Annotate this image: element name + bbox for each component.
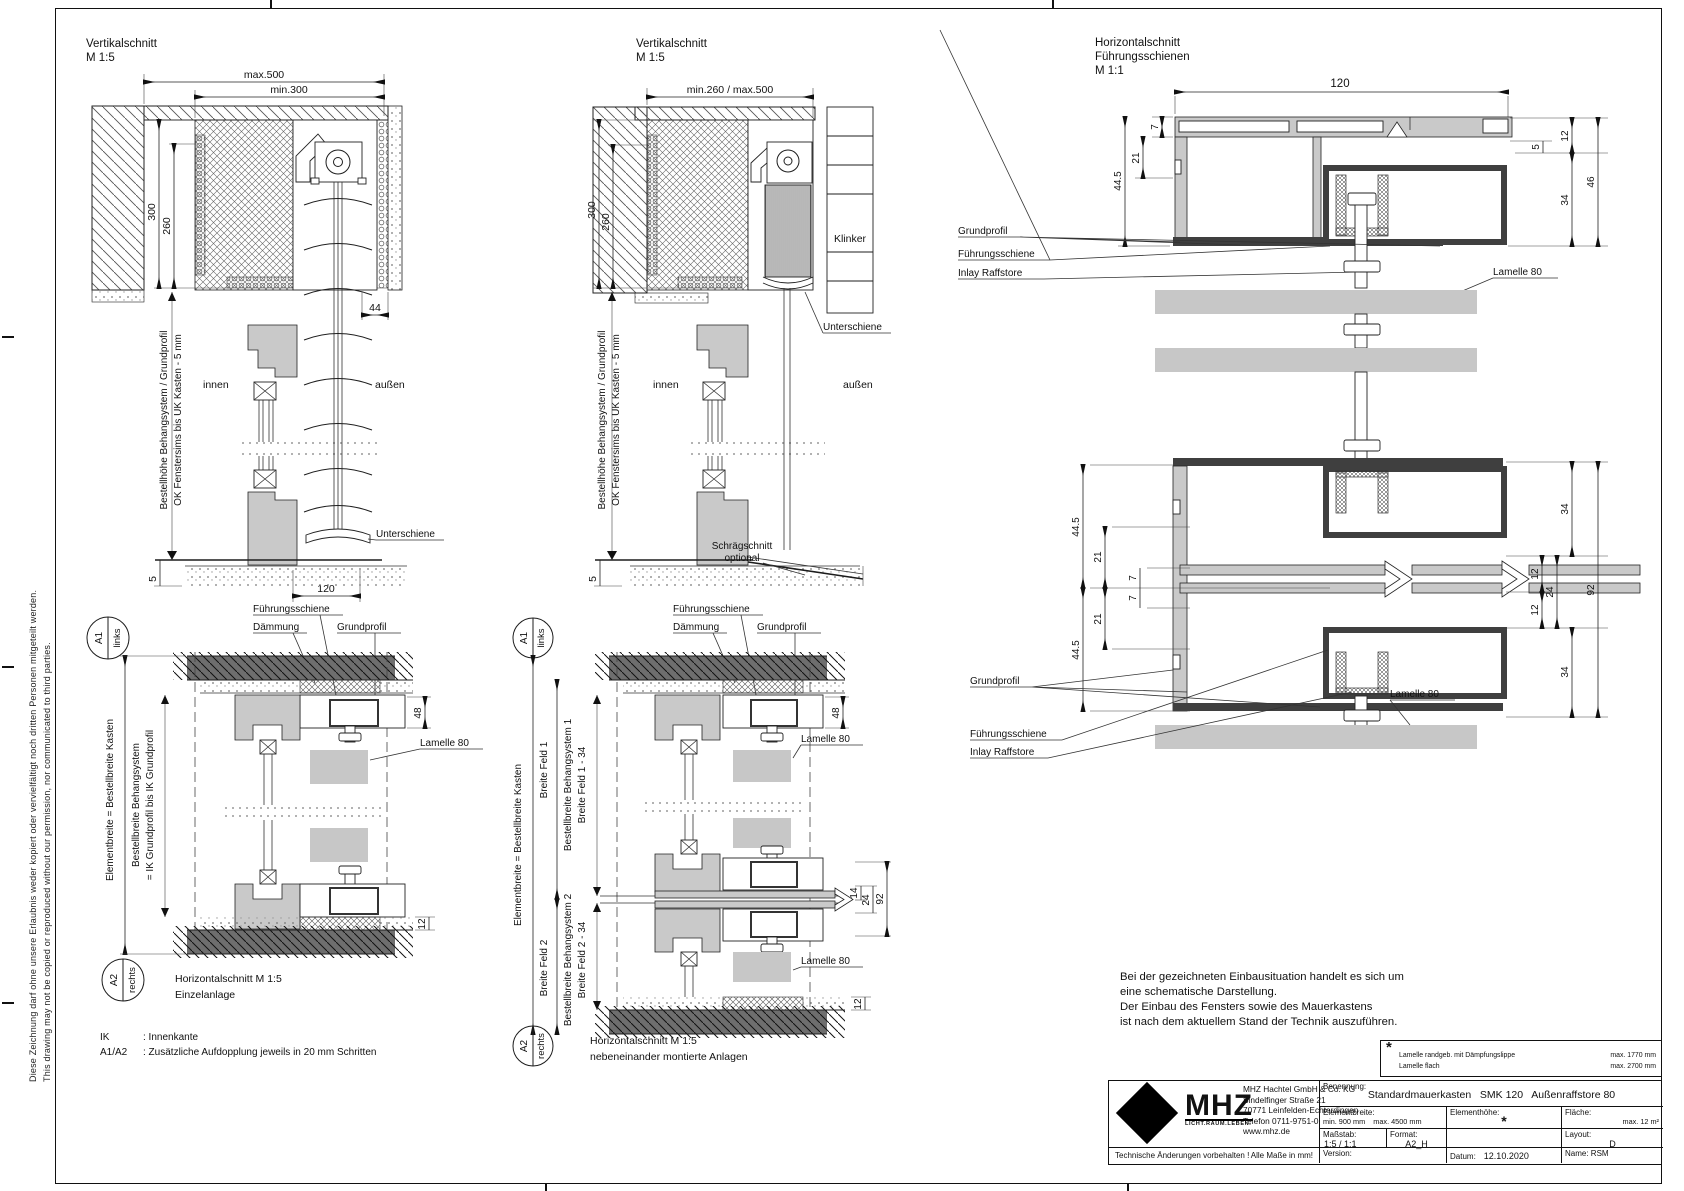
label-bestellbreite-2: = IK Grundprofil bis IK Grundprofil [145,730,156,880]
label-bestellbreite-1: Bestellbreite Behangsystem 1 [563,718,574,851]
caption-title: Horizontalschnitt M 1:5 [590,1035,697,1047]
marker-a1-dir: links [112,628,123,647]
fuehrungsschiene-profile [1326,630,1504,696]
hs11-top-detail: 120 7 21 44.5 [940,30,1608,372]
elementbreite-cell: Elementbreite: min. 900 mm max. 4500 mm [1319,1106,1446,1128]
dim-260: 260 [600,213,612,231]
format-label: Format: [1387,1129,1446,1139]
glazing [708,400,722,442]
glazing [259,400,273,442]
horizontal-section-einzelanlage: A1 links Führungsschiene Dämmung Grundpr… [75,600,505,1070]
lamelle-slat [733,750,791,782]
window-frame-top [697,325,748,377]
horizontal-section-m11: Horizontalschnitt Führungsschienen M 1:1… [940,30,1680,790]
hs15a-field-top [235,695,405,805]
flaeche-value: max. 12 m² [1562,1117,1663,1126]
hs11-coupling-detail: 44.5 21 7 7 21 44.5 34 12 24 12 34 [970,372,1640,758]
vs1-labels: innen außen Unterschiene Bestellhöhe Beh… [159,331,444,541]
lamelle-slat [310,750,368,784]
footnote-box: * Lamelle randgeb. mit Dämpfungslippe ma… [1380,1040,1662,1077]
elementbreite-label: Elementbreite: [1320,1107,1446,1117]
benennung-cell: Benennung: Standardmauerkasten SMK 120 A… [1319,1081,1663,1106]
hs15b-marker-a2: A2 rechts [513,1026,553,1066]
datum-value: 12.10.2020 [1484,1151,1529,1161]
label-schraegschnitt-2: optional [724,553,759,564]
logo-cell: MHZ LICHT.RAUM.LEBEN. [1109,1081,1241,1147]
footnote-value: max. 2700 mm [1610,1063,1656,1070]
unterschiene-profile [306,529,370,543]
dim-92: 92 [1586,584,1597,596]
hs15a-marker-a1: A1 links [87,617,129,659]
caption-subtitle: Einzelanlage [175,989,235,1001]
dim-44-5: 44.5 [1071,517,1082,537]
label-fuehrungsschiene: Führungsschiene [970,729,1047,740]
label-fuehrungsschiene: Führungsschiene [253,604,330,615]
insulation-hatch [195,120,293,290]
legend-ik-def: : Innenkante [143,1032,198,1043]
hs15a-legend: IK : Innenkante A1/A2 : Zusätzliche Aufd… [100,1032,376,1058]
reference-triangle [607,551,617,560]
label-aussen: außen [375,379,405,391]
hs15a-marker-a2: A2 rechts [102,959,144,1001]
dim-44-5: 44.5 [1113,171,1124,191]
legend-a12-def: : Zusätzliche Aufdopplung jeweils in 20 … [143,1047,376,1058]
hs15b-marker-a1: A1 links [513,618,553,658]
note-line: eine schematische Darstellung. [1120,985,1540,1000]
label-grundprofil: Grundprofil [757,622,806,633]
layout-label: Layout: [1562,1129,1663,1139]
vertical-section-1: Vertikalschnitt M 1:5 [70,30,480,610]
vertical-section-2: Vertikalschnitt M 1:5 Klinker [505,30,935,610]
roller-housing [315,142,362,182]
vs2-title: Vertikalschnitt M 1:5 [636,38,708,64]
lamelle-pin [1355,205,1367,288]
horizontal-section-nebeneinander: A1 links Führungsschiene Dämmung Grundpr… [505,600,925,1080]
footnote-row: Lamelle flach max. 2700 mm [1399,1063,1656,1070]
lamelle-slat [310,828,368,862]
lamelle-slat [1155,290,1477,314]
dim-34: 34 [1560,194,1571,206]
dim-34: 34 [1560,666,1571,678]
dim-21: 21 [1131,152,1142,164]
dim-21: 21 [1093,613,1104,625]
fold-mark [1127,1183,1129,1191]
label-unterschiene: Unterschiene [823,322,882,333]
window-frame [655,909,720,952]
inlay-raffstore-seal [1336,175,1346,235]
datum-cell: Datum: 12.10.2020 [1446,1147,1561,1163]
dim-5: 5 [1531,144,1542,150]
label-breite-feld-1-34: Breite Feld 1 - 34 [577,746,588,823]
hs15b-caption: Horizontalschnitt M 1:5 nebeneinander mo… [590,1035,748,1063]
label-grundprofil: Grundprofil [337,622,386,633]
vs2-klinker: Klinker [827,107,873,313]
guide-tapes [784,288,790,550]
version-label: Version: [1320,1148,1352,1158]
section-title-1: Horizontalschnitt [1095,37,1181,49]
section-title: Vertikalschnitt [636,38,708,50]
daemmung-strip [300,680,380,693]
marker-a1-dir: links [536,628,547,647]
label-innen: innen [203,379,229,391]
label-elementbreite: Elementbreite = Bestellbreite Kasten [513,764,524,926]
fold-mark [270,0,272,9]
marker-a2-dir: rechts [536,1033,547,1059]
window-frame-top [248,325,297,377]
label-bestellhoehe-2: OK Fenstersims bis UK Kasten - 5 mm [173,334,184,506]
note-line: Der Einbau des Fensters sowie des Mauerk… [1120,1000,1540,1015]
coupling-connector [1385,561,1412,597]
label-unterschiene: Unterschiene [376,529,435,540]
massstab-label: Maßstab: [1320,1129,1386,1139]
dim-260: 260 [161,217,173,235]
empty-cell [1446,1128,1561,1147]
window-frame [655,695,720,740]
dim-300: 300 [586,201,598,219]
fuehrungsschiene-box [330,700,378,726]
title-block: MHZ LICHT.RAUM.LEBEN. MHZ Hachtel GmbH &… [1108,1080,1662,1165]
hs15a-wall-bottom [173,917,413,958]
insulation-hatch [647,120,748,290]
label-lamelle-80: Lamelle 80 [420,738,469,749]
label-fuehrungsschiene: Führungsschiene [958,249,1035,260]
section-title: Vertikalschnitt [86,38,158,50]
elementbreite-value: min. 900 mm max. 4500 mm [1320,1117,1446,1126]
label-lamelle-80: Lamelle 80 [1493,267,1542,278]
flaeche-label: Fläche: [1562,1107,1663,1117]
footer-right: Alle Maße in mm! [1251,1151,1313,1160]
marker-a1-label: A1 [94,631,105,644]
note-line: ist nach dem aktuellem Stand der Technik… [1120,1015,1540,1030]
label-fuehrungsschiene: Führungsschiene [673,604,750,615]
dim-7: 7 [1150,124,1161,130]
caption-title: Horizontalschnitt M 1:5 [175,973,282,985]
marker-a2-label: A2 [519,1039,530,1052]
caption-subtitle: nebeneinander montierte Anlagen [590,1051,748,1063]
section-title-2: Führungsschienen [1095,51,1190,63]
mhz-logo-icon [1116,1082,1178,1144]
footer-left: Technische Änderungen vorbehalten ! [1115,1151,1249,1160]
dim-46: 46 [1586,176,1597,188]
hs15b-field1 [645,695,823,892]
star-symbol: * [1386,1039,1392,1056]
section-scale: M 1:1 [1095,65,1124,77]
fold-mark [2,1002,14,1004]
label-aussen: außen [843,379,873,391]
name-cell: Name: RSM [1561,1147,1663,1163]
datum-label: Datum: [1447,1151,1476,1161]
marker-a1-label: A1 [519,631,530,644]
benennung-value: Standardmauerkasten SMK 120 Außenraffsto… [1320,1089,1663,1101]
lamelle-slat [733,818,791,848]
dim-34: 34 [1560,503,1571,515]
dim-7: 7 [1128,595,1139,601]
fold-mark [2,666,14,668]
legend-a12-term: A1/A2 [100,1047,128,1058]
hs15b-wall-bottom [595,997,845,1038]
label-bestellhoehe-2: OK Fenstersims bis UK Kasten - 5 mm [611,334,622,506]
label-inlay-raffstore: Inlay Raffstore [958,268,1023,279]
marker-a2-label: A2 [109,973,120,986]
vs1-title: Vertikalschnitt M 1:5 [86,38,158,64]
dim-44-5: 44.5 [1071,640,1082,660]
dim-24: 24 [861,894,872,906]
window-frame [235,695,300,740]
dim-12: 12 [853,998,864,1010]
section-scale: M 1:5 [636,52,665,64]
name-label: Name: RSM [1562,1148,1609,1158]
glazing [264,754,272,805]
label-innen: innen [653,379,679,391]
label-lamelle-80: Lamelle 80 [801,956,850,967]
copyright-note-en: This drawing may not be copied or reprod… [42,332,52,1082]
raffstore-paket [765,185,811,277]
label-daemmung: Dämmung [253,622,299,633]
vs1-window [242,325,380,565]
label-grundprofil: Grundprofil [958,226,1007,237]
vs2-kasten [748,120,813,290]
dim-48: 48 [413,707,424,719]
window-frame [655,854,720,892]
dim-12: 12 [417,918,428,930]
dim-21: 21 [1093,551,1104,563]
elementhoehe-cell: Elementhöhe: * [1446,1106,1561,1128]
dim-24: 24 [1545,586,1556,598]
label-klinker: Klinker [834,233,867,245]
label-bestellhoehe-1: Bestellhöhe Behangsystem / Grundprofil [597,331,608,510]
dim-span: min.260 / max.500 [687,84,774,96]
label-breite-feld-1: Breite Feld 1 [539,741,550,798]
lamelle-slat [1155,725,1477,749]
fold-mark [1052,0,1054,9]
hs15a-wall-top [173,652,413,693]
label-schraegschnitt-1: Schrägschnitt [712,541,773,552]
hs15b-field2 [655,909,823,997]
fuehrungsschiene-profile [1326,469,1504,535]
dim-5: 5 [587,576,599,582]
dim-12: 12 [1530,568,1541,580]
dim-12: 12 [1530,604,1541,616]
copyright-note-de: Diese Zeichnung darf ohne unsere Erlaubn… [28,210,38,1082]
footer-strip: Technische Änderungen vorbehalten ! Alle… [1109,1147,1319,1163]
label-inlay-raffstore: Inlay Raffstore [970,747,1035,758]
fuehrungsschiene-box [330,888,378,914]
hs11-title: Horizontalschnitt Führungsschienen M 1:1 [1095,37,1190,77]
dim-max500: max.500 [244,69,284,81]
dim-min300: min.300 [270,84,308,96]
installation-note: Bei der gezeichneten Einbausituation han… [1120,970,1540,1030]
lamelle-slat [1155,348,1477,372]
label-bestellhoehe-1: Bestellhöhe Behangsystem / Grundprofil [159,331,170,510]
label-bestellbreite-2: Bestellbreite Behangsystem 2 [563,893,574,1026]
label-daemmung: Dämmung [673,622,719,633]
dim-92: 92 [875,893,886,905]
vs2-window [691,288,825,565]
label-breite-feld-2-34: Breite Feld 2 - 34 [577,921,588,998]
reference-triangle [167,551,177,560]
section-scale: M 1:5 [86,52,115,64]
format-cell: Format: A2_H [1386,1128,1446,1147]
fold-mark [2,336,14,338]
hs15b-coupling [600,888,853,911]
address-cell: MHZ Hachtel GmbH & Co. KG Sindelfinger S… [1241,1081,1319,1147]
dim-44: 44 [369,302,381,314]
dim-120: 120 [1330,78,1349,90]
footnote-label: Lamelle flach [1399,1063,1440,1070]
dim-14: 14 [849,887,860,899]
label-bestellbreite-1: Bestellbreite Behangsystem [131,743,142,867]
dim-12: 12 [1560,130,1571,142]
label-lamelle-80: Lamelle 80 [1390,689,1439,700]
footnote-row: Lamelle randgeb. mit Dämpfungslippe max.… [1399,1052,1656,1059]
dim-300: 300 [146,203,158,221]
massstab-cell: Maßstab: 1:5 / 1:1 [1319,1128,1386,1147]
fold-mark [545,1183,547,1191]
note-line: Bei der gezeichneten Einbausituation han… [1120,970,1540,985]
roller-housing [767,142,812,183]
label-breite-feld-2: Breite Feld 2 [539,939,550,996]
dim-7: 7 [1128,575,1139,581]
vs1-kasten [293,120,377,290]
drawing-sheet: Diese Zeichnung darf ohne unsere Erlaubn… [0,0,1684,1191]
legend-ik-term: IK [100,1032,110,1043]
footnote-label: Lamelle randgeb. mit Dämpfungslippe [1399,1052,1515,1059]
lamelle-slat [733,952,791,982]
dim-48: 48 [831,707,842,719]
flaeche-cell: Fläche: max. 12 m² [1561,1106,1663,1128]
outer-layer [388,106,402,290]
label-elementbreite: Elementbreite = Bestellbreite Kasten [105,719,116,881]
marker-a2-dir: rechts [127,967,138,993]
layout-cell: Layout: D [1561,1128,1663,1147]
label-grundprofil: Grundprofil [970,676,1019,687]
dim-5: 5 [147,576,159,582]
label-lamelle-80: Lamelle 80 [801,734,850,745]
footnote-value: max. 1770 mm [1610,1052,1656,1059]
version-cell: Version: [1319,1147,1446,1163]
hs15a-field-bottom [235,820,405,929]
hs15b-wall-top [595,652,845,693]
hs15a-caption: Horizontalschnitt M 1:5 Einzelanlage [175,973,282,1001]
window-frame-bottom [248,492,297,565]
